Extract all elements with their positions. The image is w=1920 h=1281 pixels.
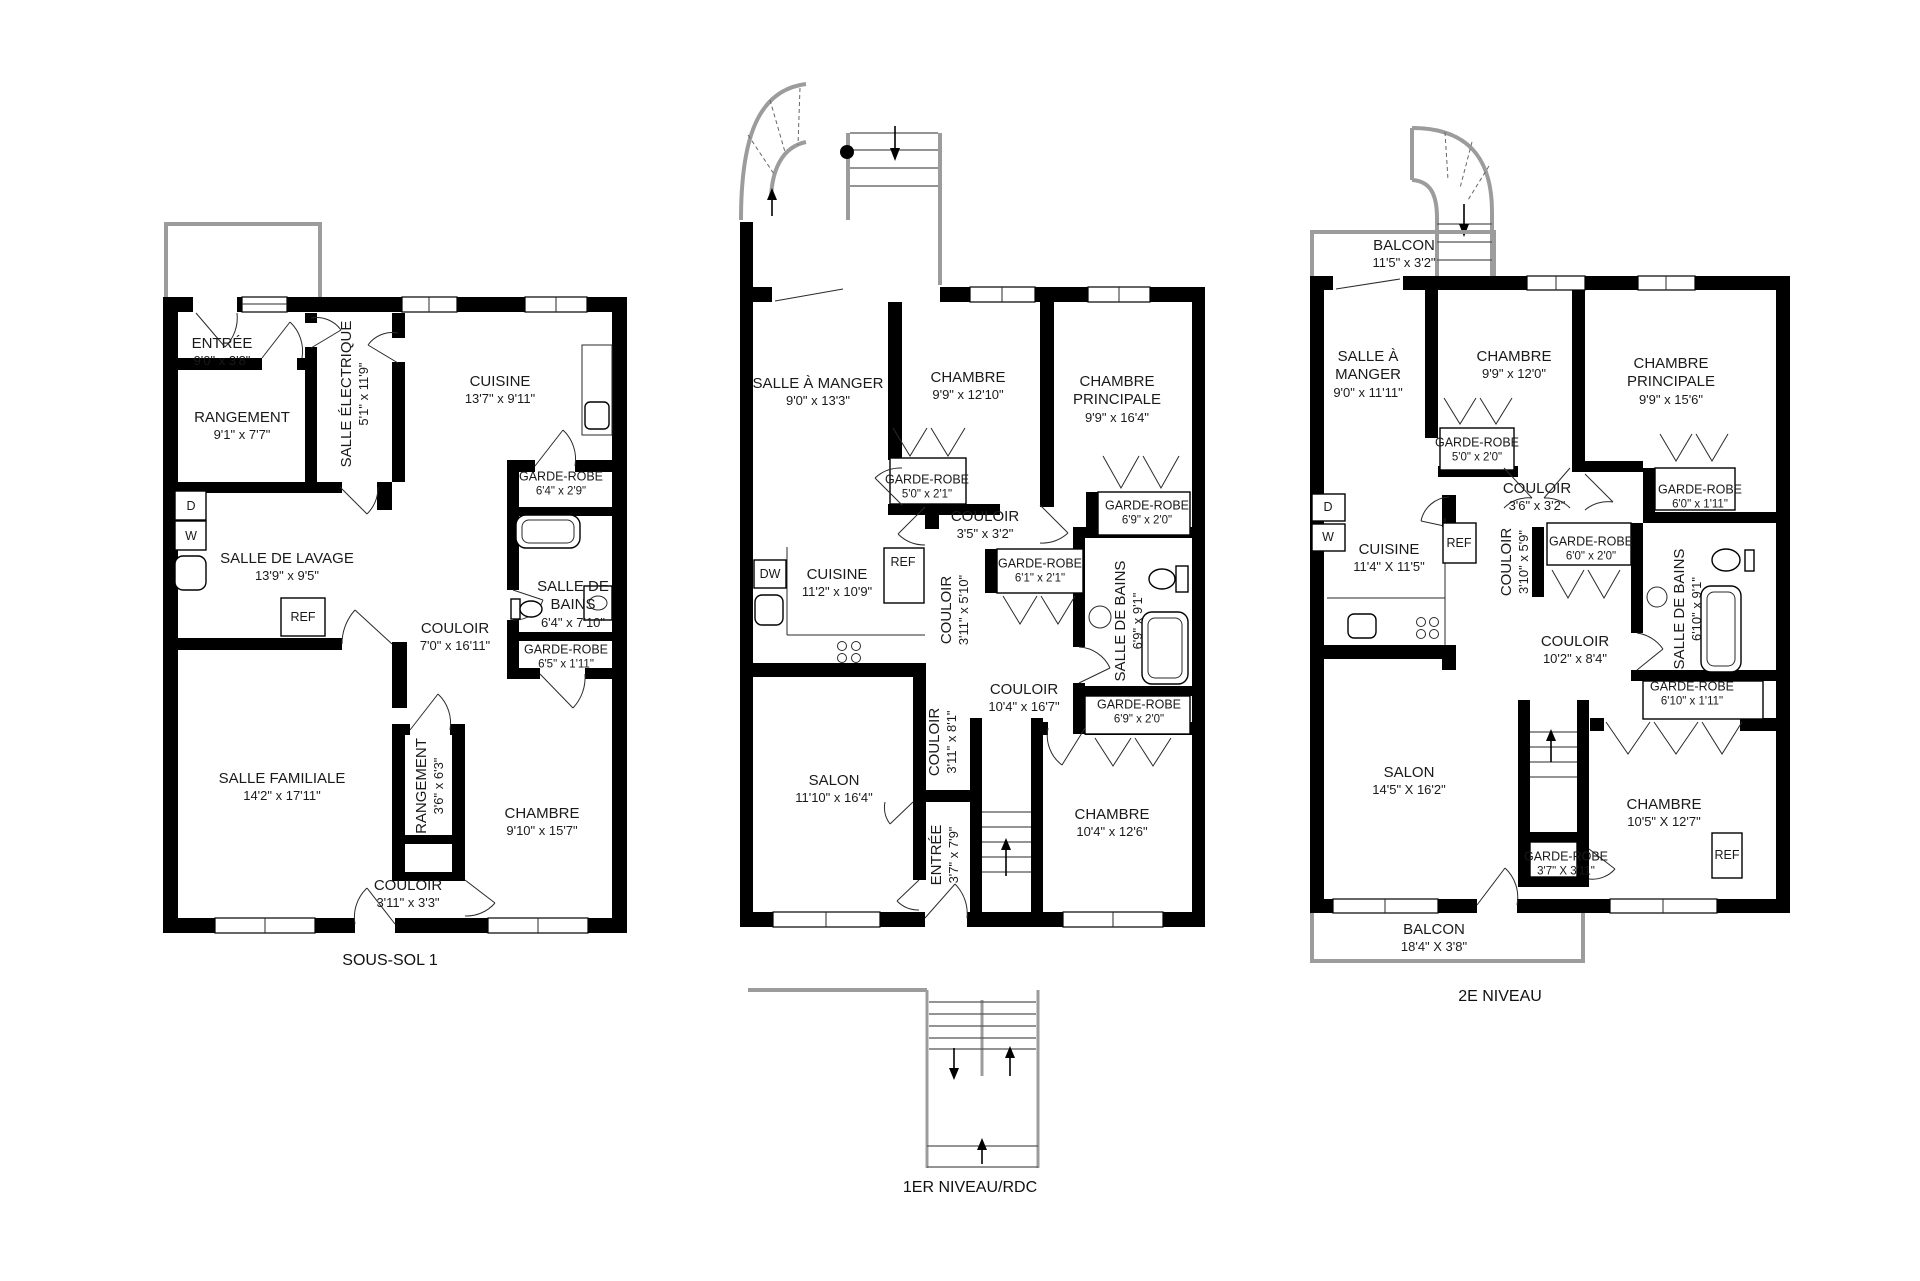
room-label-garde-robe: GARDE-ROBE 6'1" x 2'1" (998, 556, 1082, 585)
stair-up-arrow (977, 1138, 987, 1150)
room-label-entree: ENTRÉE 9'0" x 3'8" (192, 335, 253, 369)
room-label-balcon-bas: BALCON 18'4" X 3'8" (1401, 921, 1467, 955)
bifold-door (1003, 596, 1075, 624)
plan-title-rdc: 1ER NIVEAU/RDC (903, 1179, 1037, 1197)
room-label-chambre: CHAMBRE 10'5" X 12'7" (1626, 796, 1701, 830)
room-label-entree-vertical: ENTRÉE 3'7" x 7'9" (928, 825, 962, 886)
fridge-label: REF (291, 610, 316, 624)
bifold-door (893, 428, 965, 456)
room-label-chambre-principale: CHAMBRE PRINCIPALE 9'9" x 15'6" (1612, 355, 1730, 407)
stair-up-arrow (1001, 838, 1011, 850)
toilet-icon (1712, 549, 1740, 571)
room-label-salle-de-lavage: SALLE DE LAVAGE 13'9" x 9'5" (220, 550, 354, 584)
stair-down-arrow (949, 1068, 959, 1080)
room-label-salle-electrique: SALLE ÉLECTRIQUE 5'1" x 11'9" (338, 321, 372, 468)
stair-up-arrow (767, 188, 777, 200)
plan-title-2e-niveau: 2E NIVEAU (1458, 988, 1542, 1006)
room-label-couloir-vertical: COULOIR 3'11" x 8'1" (926, 708, 960, 776)
room-label-garde-robe: GARDE-ROBE 6'0" x 2'0" (1549, 534, 1633, 563)
bifold-door (1660, 434, 1728, 461)
room-label-couloir-vertical: COULOIR 3'10" x 5'9" (1498, 528, 1532, 596)
room-label-couloir-vertical: COULOIR 3'11" x 5'10" (938, 575, 972, 645)
stair-down-arrow (890, 148, 900, 161)
stair-up-arrow (1546, 729, 1556, 741)
room-label-couloir-bas: COULOIR 3'11" x 3'3" (374, 877, 442, 911)
room-dims: 9'0" x 3'8" (192, 353, 253, 369)
dryer-label: D (186, 499, 195, 513)
toilet-icon (1149, 569, 1175, 589)
room-label-cuisine: CUISINE 11'2" x 10'9" (802, 566, 872, 600)
room-label-garde-robe: GARDE-ROBE 5'0" x 2'1" (885, 472, 969, 501)
toilet-tank-icon (1745, 550, 1754, 571)
porch-outline (166, 224, 320, 298)
room-label-garde-robe: GARDE-ROBE 6'0" x 1'11" (1658, 482, 1742, 511)
room-label-cuisine: CUISINE 11'4" X 11'5" (1353, 541, 1425, 575)
bifold-door (1095, 738, 1171, 766)
room-name: ENTRÉE (192, 335, 253, 353)
bifold-door (1606, 722, 1742, 754)
room-label-couloir: COULOIR 10'4" x 16'7" (988, 681, 1059, 715)
fridge-label-2: REF (1715, 848, 1740, 862)
dishwasher-label: DW (760, 567, 781, 581)
stair-newel-dot (840, 145, 854, 159)
room-label-rangement-closet: RANGEMENT 3'6" x 6'3" (413, 738, 447, 834)
room-label-garde-robe: GARDE-ROBE 6'9" x 2'0" (1105, 498, 1189, 527)
room-label-chambre-principale: CHAMBRE PRINCIPALE 9'9" x 16'4" (1058, 373, 1176, 425)
stove-icon (1417, 618, 1426, 627)
bath-sink-icon (1647, 587, 1667, 607)
room-label-couloir: COULOIR 7'0" x 16'11" (420, 620, 490, 654)
room-label-balcon: BALCON 11'5" x 3'2" (1372, 237, 1435, 271)
room-label-couloir: COULOIR 3'5" x 3'2" (951, 508, 1019, 542)
room-label-salle-a-manger: SALLE À MANGER 9'0" x 11'11" (1320, 348, 1416, 400)
washer-label: W (1322, 530, 1334, 544)
room-label-salle-de-bains: SALLE DE BAINS 6'4" x 7'10" (529, 578, 617, 630)
stair-up-arrow (1005, 1046, 1015, 1058)
room-label-chambre: CHAMBRE 9'10" x 15'7" (504, 805, 579, 839)
room-label-salle-a-manger: SALLE À MANGER 9'0" x 13'3" (753, 375, 884, 409)
kitchen-sink-icon (1348, 614, 1376, 638)
room-label-garde-robe: GARDE-ROBE 3'7" X 3'11" (1524, 849, 1608, 878)
room-label-garde-robe: GARDE-ROBE 6'5" x 1'11" (524, 642, 608, 671)
room-label-rangement: RANGEMENT 9'1" x 7'7" (194, 409, 290, 443)
room-label-chambre: CHAMBRE 9'9" x 12'10" (930, 369, 1005, 403)
bathtub-icon (1142, 612, 1188, 684)
front-door-line (775, 289, 843, 301)
bifold-door (1103, 456, 1179, 488)
room-label-salle-familiale: SALLE FAMILIALE 14'2" x 17'11" (219, 770, 346, 804)
plan-title-sous-sol: SOUS-SOL 1 (342, 952, 437, 970)
room-label-couloir: COULOIR 10'2" x 8'4" (1541, 633, 1609, 667)
room-label-garde-robe: GARDE-ROBE 6'4" x 2'9" (519, 469, 603, 498)
room-label-salle-de-bains: SALLE DE BAINS 6'10" x 9'1" (1671, 549, 1705, 670)
bifold-door (1444, 398, 1512, 424)
kitchen-sink-icon (585, 402, 609, 429)
room-label-chambre: CHAMBRE 10'4" x 12'6" (1074, 806, 1149, 840)
fridge-label: REF (891, 555, 916, 569)
room-label-garde-robe: GARDE-ROBE 5'0" x 2'0" (1435, 435, 1519, 464)
toilet-tank-icon (511, 599, 520, 619)
washer-label: W (185, 529, 197, 543)
toilet-tank-icon (1176, 566, 1188, 592)
room-label-salle-de-bains: SALLE DE BAINS 6'9" x 9'1" (1112, 561, 1146, 682)
room-label-chambre: CHAMBRE 9'9" x 12'0" (1476, 348, 1551, 382)
kitchen-sink-icon (755, 595, 783, 625)
room-label-salon: SALON 14'5" X 16'2" (1372, 764, 1445, 798)
room-label-garde-robe: GARDE-ROBE 6'10" x 1'11" (1650, 679, 1734, 708)
room-label-salon: SALON 11'10" x 16'4" (795, 772, 873, 806)
room-label-garde-robe: GARDE-ROBE 6'9" x 2'0" (1097, 697, 1181, 726)
fridge-label: REF (1447, 536, 1472, 550)
room-label-couloir: COULOIR 3'6" x 3'2" (1503, 480, 1571, 514)
laundry-sink-icon (175, 556, 206, 590)
bath-sink-icon (1089, 606, 1111, 628)
bifold-door (1552, 570, 1620, 598)
dryer-label: D (1323, 500, 1332, 514)
balcony-door-line (1336, 279, 1400, 289)
room-label-cuisine: CUISINE 13'7" x 9'11" (465, 373, 535, 407)
stove-icon (838, 642, 847, 651)
floorplan-page: ENTRÉE 9'0" x 3'8" RANGEMENT 9'1" x 7'7"… (0, 0, 1920, 1281)
